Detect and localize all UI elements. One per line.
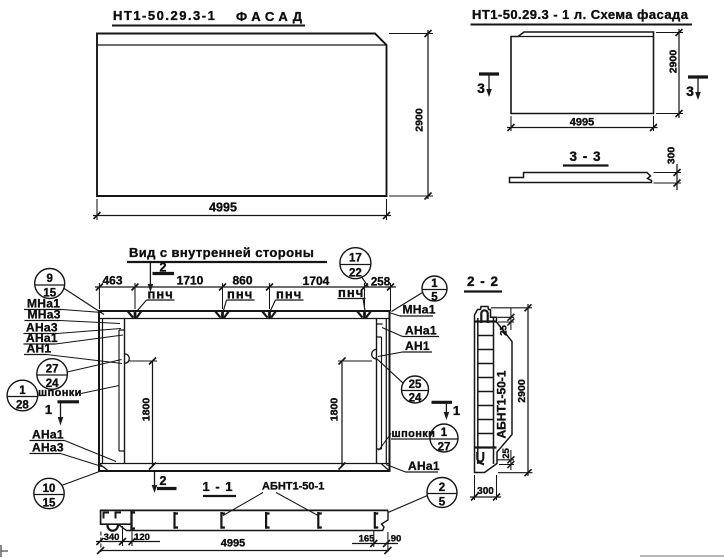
svg-text:90: 90 [391, 534, 402, 545]
svg-text:Вид с внутренней стороны: Вид с внутренней стороны [129, 245, 314, 260]
svg-text:28: 28 [16, 400, 29, 412]
svg-text:шпонки: шпонки [392, 428, 436, 440]
svg-text:15: 15 [43, 498, 56, 510]
svg-text:1: 1 [453, 403, 460, 418]
svg-text:АБНТ1-50-1: АБНТ1-50-1 [262, 481, 324, 493]
svg-text:1704: 1704 [303, 274, 330, 288]
svg-text:2900: 2900 [516, 379, 528, 403]
svg-text:9: 9 [46, 273, 52, 285]
svg-text:1 - 1: 1 - 1 [202, 479, 233, 494]
svg-text:340: 340 [104, 532, 120, 543]
svg-text:1800: 1800 [329, 398, 341, 422]
svg-text:1800: 1800 [141, 398, 153, 422]
svg-text:4995: 4995 [221, 538, 245, 550]
svg-text:4995: 4995 [209, 201, 237, 215]
svg-text:3: 3 [686, 83, 694, 99]
svg-text:25: 25 [409, 379, 422, 391]
svg-text:МНа3: МНа3 [28, 308, 61, 322]
svg-text:АНа3: АНа3 [32, 441, 64, 455]
svg-text:НТ1-50.29.3 - 1 л. Схема фасад: НТ1-50.29.3 - 1 л. Схема фасада [472, 7, 689, 22]
svg-text:пнч: пнч [227, 287, 253, 302]
svg-text:НТ1-50.29.3-1: НТ1-50.29.3-1 [113, 8, 216, 23]
svg-text:АНа1: АНа1 [32, 428, 64, 442]
svg-text:2: 2 [439, 482, 445, 494]
svg-text:10: 10 [43, 483, 56, 495]
svg-text:пнч: пнч [276, 287, 302, 302]
svg-text:258: 258 [371, 277, 391, 289]
svg-text:2900: 2900 [414, 108, 426, 132]
svg-text:27: 27 [438, 442, 451, 454]
svg-text:2: 2 [160, 474, 167, 488]
svg-text:АНа1: АНа1 [405, 324, 437, 338]
svg-text:1: 1 [431, 278, 438, 290]
svg-text:АН1: АН1 [27, 342, 52, 356]
svg-text:25: 25 [501, 448, 512, 459]
svg-text:25: 25 [499, 325, 510, 336]
svg-text:1: 1 [45, 402, 52, 417]
svg-text:120: 120 [134, 532, 150, 543]
svg-text:2: 2 [160, 261, 167, 275]
svg-text:300: 300 [666, 147, 678, 165]
svg-text:1: 1 [441, 427, 448, 439]
svg-text:АНа1: АНа1 [408, 459, 440, 473]
svg-text:24: 24 [409, 393, 422, 405]
svg-text:22: 22 [349, 268, 362, 280]
svg-text:шпонки: шпонки [38, 387, 82, 399]
svg-text:463: 463 [102, 274, 122, 288]
svg-text:2 - 2: 2 - 2 [467, 274, 499, 289]
svg-text:МНа1: МНа1 [403, 303, 436, 317]
svg-text:АБНТ1-50-1: АБНТ1-50-1 [495, 370, 509, 438]
svg-text:3 - 3: 3 - 3 [569, 149, 601, 164]
svg-text:860: 860 [232, 274, 252, 288]
svg-text:пнч: пнч [338, 285, 364, 300]
svg-text:2900: 2900 [668, 50, 680, 74]
svg-text:АН1: АН1 [405, 339, 430, 353]
svg-text:3: 3 [477, 80, 485, 96]
svg-text:300: 300 [477, 486, 494, 497]
svg-text:17: 17 [349, 253, 362, 265]
svg-text:5: 5 [439, 497, 446, 509]
svg-text:4995: 4995 [570, 117, 594, 129]
svg-text:1710: 1710 [177, 274, 204, 288]
svg-text:27: 27 [46, 364, 59, 376]
svg-text:165: 165 [359, 534, 376, 545]
svg-text:1: 1 [19, 385, 26, 397]
svg-text:ФАСАД: ФАСАД [236, 9, 307, 24]
